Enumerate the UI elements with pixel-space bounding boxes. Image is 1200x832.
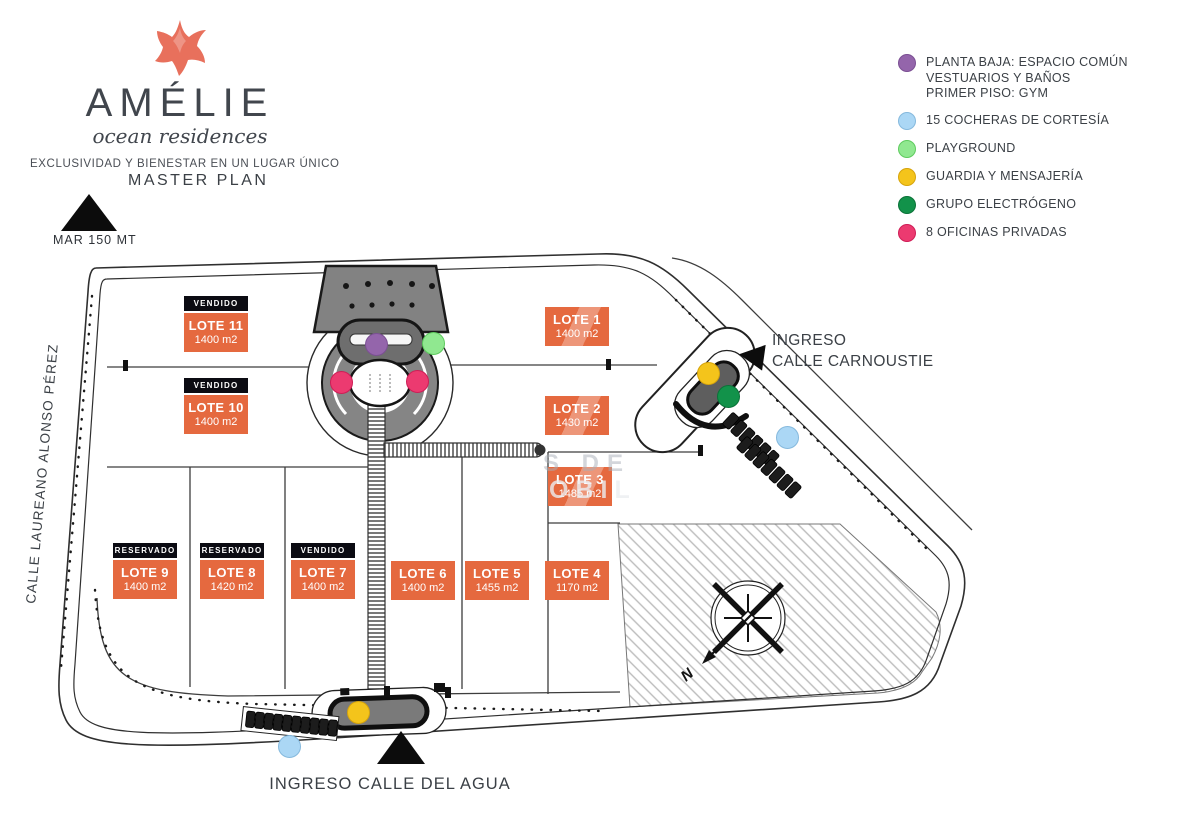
lot-name: LOTE 9 bbox=[113, 560, 177, 580]
brand-logo: AMÉLIE ocean residences EXCLUSIVIDAD Y B… bbox=[30, 18, 330, 170]
lot-area: 1400 m2 bbox=[545, 327, 609, 346]
legend-dot-cocheras bbox=[898, 112, 916, 130]
lot-status-badge: RESERVADO bbox=[200, 543, 264, 558]
lot-status-badge: VENDIDO bbox=[184, 378, 248, 393]
marker-playground bbox=[422, 332, 445, 355]
lot-area: 1400 m2 bbox=[113, 580, 177, 599]
agua-entrance-label: INGRESO CALLE DEL AGUA bbox=[230, 775, 550, 794]
lot-name: LOTE 7 bbox=[291, 560, 355, 580]
legend-item-oficinas: 8 OFICINAS PRIVADAS bbox=[898, 225, 1178, 242]
carnoustie-label-line2: CALLE CARNOUSTIE bbox=[772, 351, 933, 372]
lot-card-6: LOTE 61400 m2 bbox=[391, 561, 455, 600]
guard-house-agua bbox=[330, 696, 428, 728]
lot-card-7: VENDIDOLOTE 71400 m2 bbox=[291, 543, 355, 599]
legend: PLANTA BAJA: ESPACIO COMÚNVESTUARIOS Y B… bbox=[898, 55, 1178, 242]
lot-card-10: VENDIDOLOTE 101400 m2 bbox=[184, 378, 248, 434]
lot-area: 1400 m2 bbox=[391, 581, 455, 600]
starfish-icon bbox=[149, 18, 211, 80]
lot-card-1: LOTE 11400 m2 bbox=[545, 307, 609, 346]
carnoustie-entrance-triangle-icon bbox=[737, 341, 765, 370]
lot-name: LOTE 2 bbox=[545, 396, 609, 416]
lot-name: LOTE 11 bbox=[184, 313, 248, 333]
legend-item-electrogeno: GRUPO ELECTRÓGENO bbox=[898, 197, 1178, 214]
legend-label-playground: PLAYGROUND bbox=[926, 141, 1016, 157]
marker-cocheras-agua bbox=[278, 735, 301, 758]
marker-oficinas-west bbox=[330, 371, 353, 394]
marker-espacio-comun bbox=[365, 333, 388, 356]
legend-label-electrogeno: GRUPO ELECTRÓGENO bbox=[926, 197, 1076, 213]
marker-oficinas-east bbox=[406, 370, 429, 393]
carnoustie-entrance-label: INGRESO CALLE CARNOUSTIE bbox=[772, 330, 933, 372]
legend-label-cocheras: 15 COCHERAS DE CORTESÍA bbox=[926, 113, 1109, 129]
marker-guardia-agua bbox=[347, 701, 370, 724]
lot-status-badge: RESERVADO bbox=[113, 543, 177, 558]
lot-status-badge: VENDIDO bbox=[184, 296, 248, 311]
brand-subtitle: ocean residences bbox=[30, 124, 330, 148]
legend-dot-electrogeno bbox=[898, 196, 916, 214]
lot-area: 1455 m2 bbox=[465, 581, 529, 600]
master-plan-page: N AMÉLIE ocean residences EXCLUSIVIDAD Y… bbox=[0, 0, 1200, 832]
legend-dot-oficinas bbox=[898, 224, 916, 242]
legend-label-oficinas: 8 OFICINAS PRIVADAS bbox=[926, 225, 1067, 241]
legend-dot-guardia bbox=[898, 168, 916, 186]
sea-distance-label: MAR 150 MT bbox=[53, 233, 137, 247]
lot-name: LOTE 4 bbox=[545, 561, 609, 581]
lot-area: 1400 m2 bbox=[291, 580, 355, 599]
carnoustie-label-line1: INGRESO bbox=[772, 330, 933, 351]
lot-card-3: LOTE 31485 m2 bbox=[548, 467, 612, 506]
legend-item-playground: PLAYGROUND bbox=[898, 141, 1178, 158]
east-walkway bbox=[384, 443, 543, 457]
lot-area: 1400 m2 bbox=[184, 415, 248, 434]
lot-name: LOTE 1 bbox=[545, 307, 609, 327]
page-title: MASTER PLAN bbox=[128, 172, 268, 190]
lot-card-4: LOTE 41170 m2 bbox=[545, 561, 609, 600]
marker-cocheras-carnoustie bbox=[776, 426, 799, 449]
lot-name: LOTE 10 bbox=[184, 395, 248, 415]
legend-label-common: PLANTA BAJA: ESPACIO COMÚNVESTUARIOS Y B… bbox=[926, 55, 1128, 102]
legend-dot-playground bbox=[898, 140, 916, 158]
lot-name: LOTE 5 bbox=[465, 561, 529, 581]
brand-tagline: EXCLUSIVIDAD Y BIENESTAR EN UN LUGAR ÚNI… bbox=[30, 158, 330, 170]
lot-area: 1400 m2 bbox=[184, 333, 248, 352]
lot-name: LOTE 6 bbox=[391, 561, 455, 581]
lot-area: 1485 m2 bbox=[548, 487, 612, 506]
agua-entrance-triangle-icon bbox=[377, 731, 425, 764]
lot-name: LOTE 8 bbox=[200, 560, 264, 580]
lot-status-badge: VENDIDO bbox=[291, 543, 355, 558]
marker-guardia-carnoustie bbox=[697, 362, 720, 385]
legend-item-common: PLANTA BAJA: ESPACIO COMÚNVESTUARIOS Y B… bbox=[898, 55, 1178, 102]
lot-area: 1170 m2 bbox=[545, 581, 609, 600]
lot-card-8: RESERVADOLOTE 81420 m2 bbox=[200, 543, 264, 599]
brand-name: AMÉLIE bbox=[30, 82, 330, 124]
lot-card-11: VENDIDOLOTE 111400 m2 bbox=[184, 296, 248, 352]
lot-area: 1420 m2 bbox=[200, 580, 264, 599]
central-walkway bbox=[368, 398, 385, 700]
lot-name: LOTE 3 bbox=[548, 467, 612, 487]
legend-label-guardia: GUARDIA Y MENSAJERÍA bbox=[926, 169, 1083, 185]
legend-dot-common bbox=[898, 54, 916, 72]
marker-grupo-electrogeno bbox=[717, 385, 740, 408]
lot-card-5: LOTE 51455 m2 bbox=[465, 561, 529, 600]
legend-item-cocheras: 15 COCHERAS DE CORTESÍA bbox=[898, 113, 1178, 130]
lot-area: 1430 m2 bbox=[545, 416, 609, 435]
lot-card-9: RESERVADOLOTE 91400 m2 bbox=[113, 543, 177, 599]
lot-card-2: LOTE 21430 m2 bbox=[545, 396, 609, 435]
sea-triangle-icon bbox=[61, 194, 117, 231]
legend-item-guardia: GUARDIA Y MENSAJERÍA bbox=[898, 169, 1178, 186]
